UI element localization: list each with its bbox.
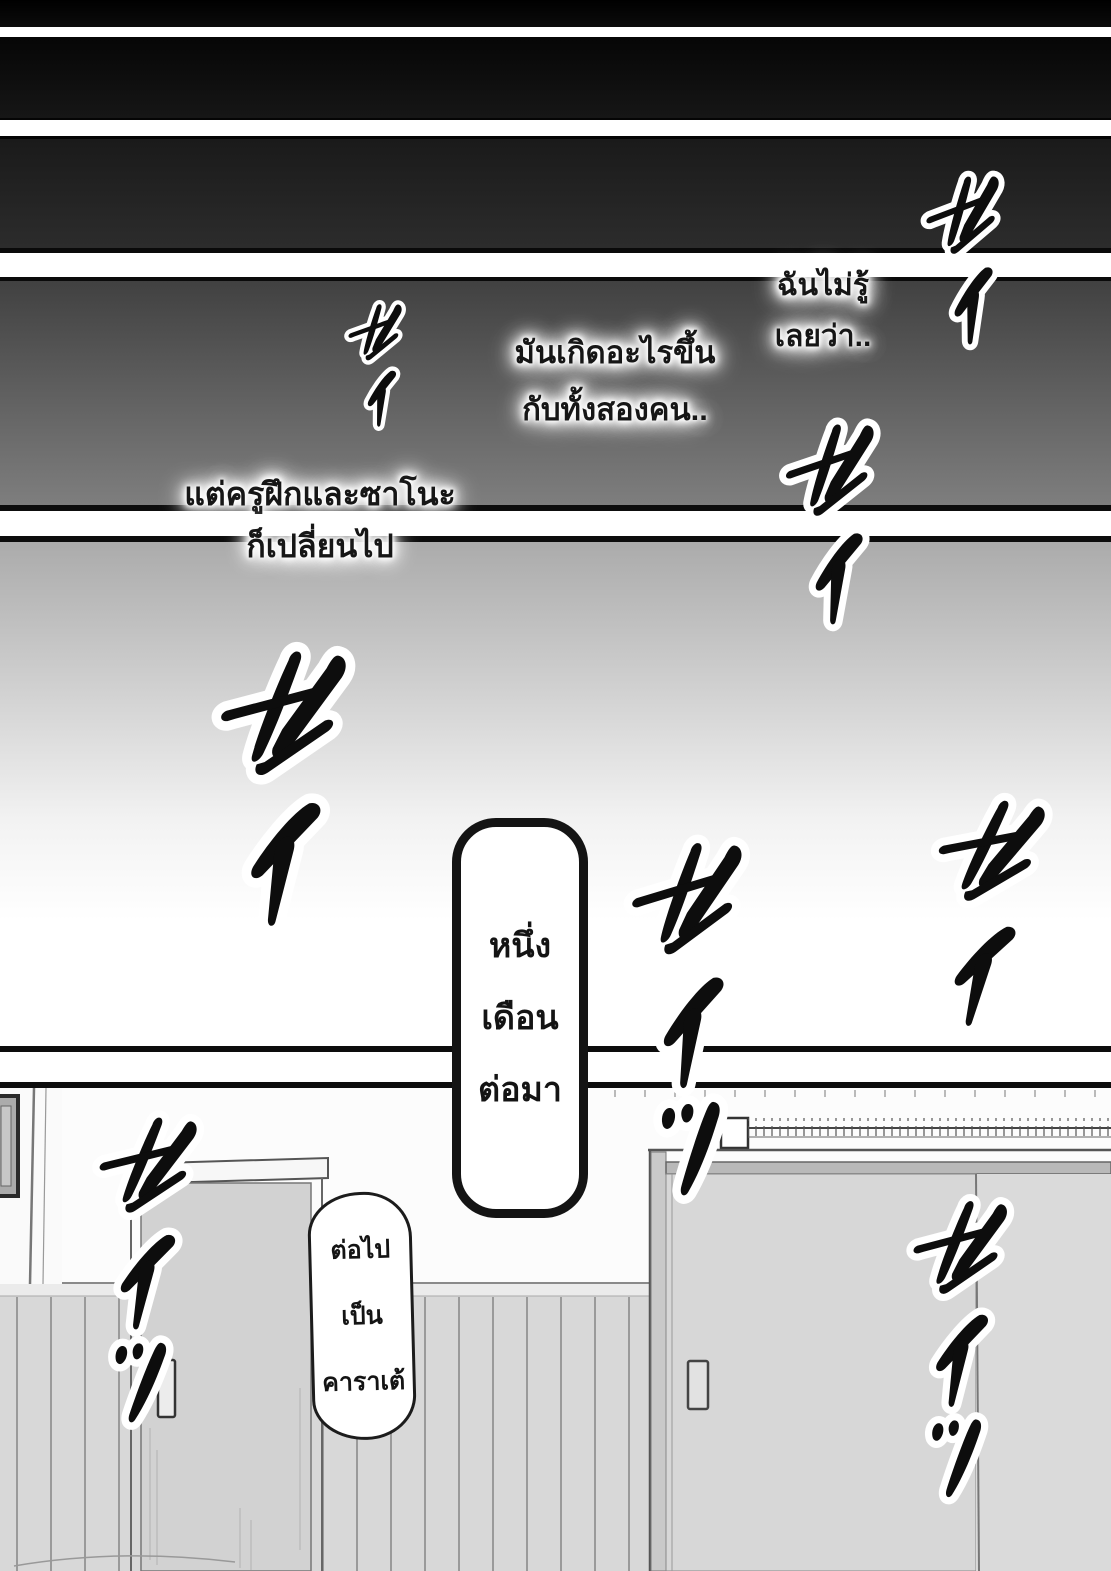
sliding-door-handle (688, 1361, 708, 1409)
speech-bubble-line: ต่อไป (330, 1216, 391, 1284)
panel-gutter-1 (0, 27, 1111, 37)
panel-gutter-4 (0, 505, 1111, 542)
time-box-line: ต่อมา (478, 1054, 562, 1126)
speech-bubble-line: คาราเต้ (321, 1348, 406, 1416)
picture-frame (0, 1096, 18, 1196)
narration-line: มันเกิดอะไรขึ้น (495, 324, 735, 381)
panel-gutter-2 (0, 118, 1111, 139)
sliding-door-rail (748, 1118, 1111, 1136)
narration-line: เลยว่า.. (713, 311, 933, 362)
speech-bubble: ต่อไป เป็น คาราเต้ (307, 1191, 417, 1442)
time-box-line: เดือน (481, 982, 558, 1054)
narration-line: ฉันไม่รู้ (713, 260, 933, 311)
narration-caption-2: มันเกิดอะไรขึ้น กับทั้งสองคน.. (495, 324, 735, 438)
time-box-line: หนึ่ง (489, 910, 551, 982)
narration-line: กับทั้งสองคน.. (495, 381, 735, 438)
sfx-sei-left-large (211, 648, 349, 940)
panel-1-dark (0, 37, 1111, 118)
panel-top-black-bar (0, 0, 1111, 27)
narration-caption-1: ฉันไม่รู้ เลยว่า.. (713, 260, 933, 362)
sfx-sei-bottom-right (903, 1198, 1010, 1513)
narration-line: แต่ครูฝึกและซาโนะ (178, 468, 462, 520)
sfx-sei-bottom-left (84, 1114, 200, 1441)
narration-caption-3: แต่ครูฝึกและซาโนะ ก็เปลี่ยนไป (178, 468, 462, 572)
speech-bubble-line: เป็น (340, 1282, 383, 1349)
sfx-sei-top-right (922, 173, 1012, 354)
manga-page: ฉันไม่รู้ เลยว่า.. มันเกิดอะไรขึ้น กับทั… (0, 0, 1111, 1571)
sfx-sei-center (630, 842, 744, 1213)
time-skip-box: หนึ่ง เดือน ต่อมา (452, 818, 588, 1218)
narration-line: ก็เปลี่ยนไป (178, 520, 462, 572)
sfx-sei-upper-left (346, 303, 410, 434)
sfx-sei-mid-right (782, 422, 882, 634)
